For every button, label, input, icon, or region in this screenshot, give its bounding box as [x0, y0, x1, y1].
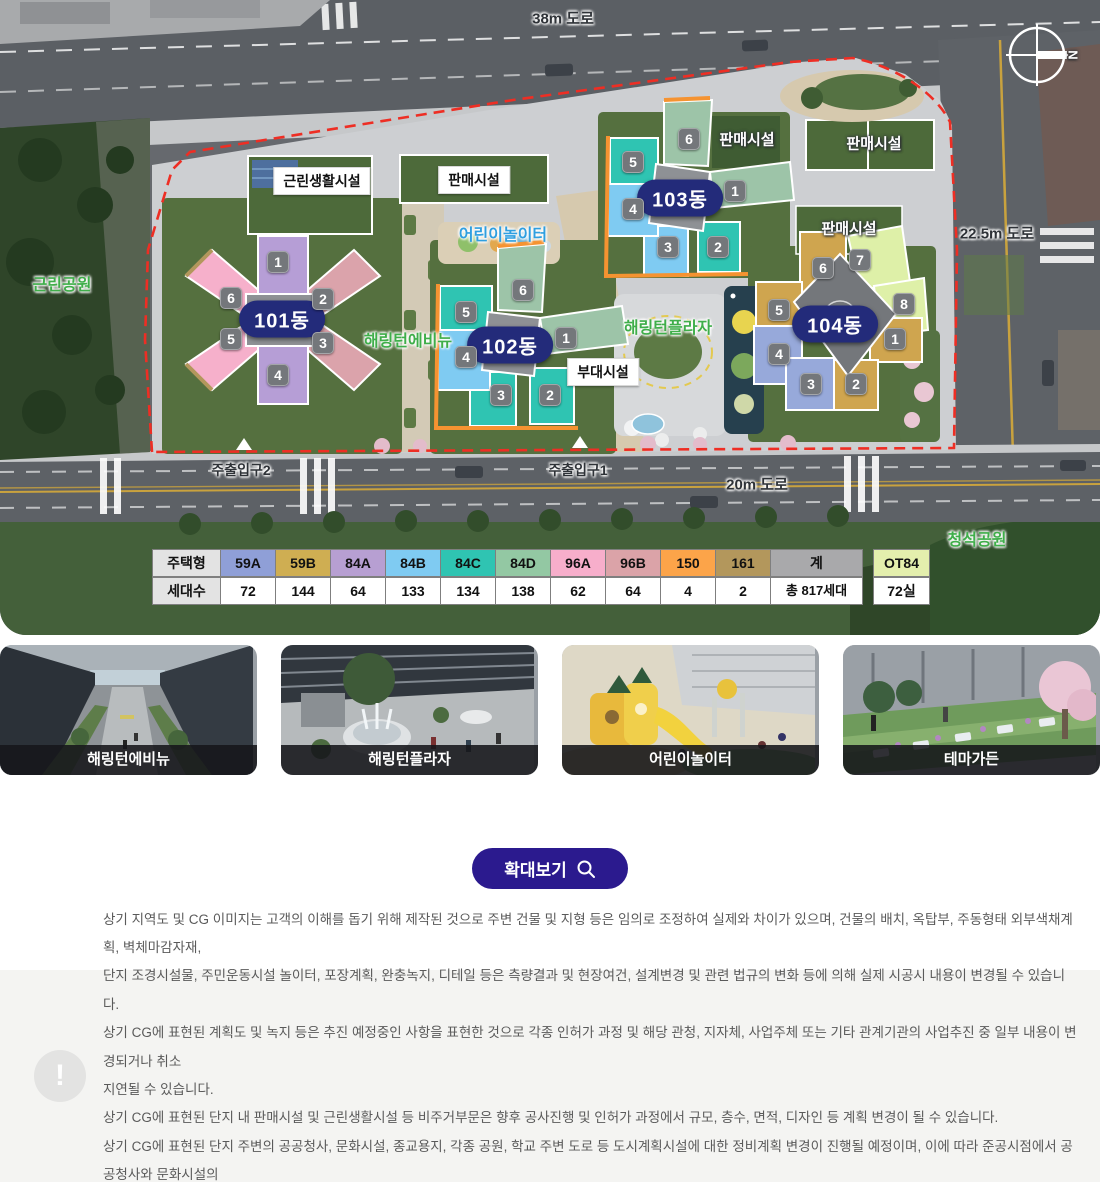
- row-header-count: 세대수: [152, 577, 221, 605]
- zoom-button-label: 확대보기: [504, 856, 567, 881]
- unit-badge: 6: [812, 257, 834, 279]
- unit-badge: 2: [539, 384, 561, 406]
- type-cell-84C: 84C: [440, 549, 496, 577]
- type-cell-96B: 96B: [605, 549, 661, 577]
- disclaimer-line: 상기 CG에 표현된 계획도 및 녹지 등은 추진 예정중인 사항을 표현한 것…: [103, 1019, 1080, 1076]
- disclaimer-line: 상기 CG에 표현된 단지 주변의 공공청사, 문화시설, 종교용지, 각종 공…: [103, 1133, 1080, 1182]
- unit-type-table: 주택형 세대수 59A72 59B144 84A64 84B133 84C134…: [153, 549, 930, 605]
- count-cell-OT84: 72실: [873, 577, 930, 605]
- facility-thumbnails: 해링턴에비뉴 해링턴플라자: [0, 635, 1100, 775]
- harrington-plaza-label: 해링턴플라자: [624, 314, 712, 338]
- type-cell-OT84: OT84: [873, 549, 930, 577]
- unit-badge: 4: [768, 343, 790, 365]
- count-cell-84A: 64: [330, 577, 386, 605]
- unit-badge: 3: [312, 332, 334, 354]
- sales-facility-rightmid-label: 판매시설: [821, 218, 876, 239]
- unit-badge: 1: [267, 251, 289, 273]
- exclamation-icon: !: [34, 1050, 86, 1102]
- type-cell-59B: 59B: [275, 549, 331, 577]
- type-cell-59A: 59A: [220, 549, 276, 577]
- thumbnail-harrington-avenue[interactable]: 해링턴에비뉴: [0, 645, 257, 775]
- unit-badge: 1: [724, 180, 746, 202]
- unit-badge: 5: [768, 299, 790, 321]
- unit-badge: 5: [220, 328, 242, 350]
- site-plan-map: 38m 도로 22.5m 도로 20m 도로 주출입구2 주출입구1 근린공원 …: [0, 0, 1100, 635]
- building-103-label: 103동: [637, 180, 723, 217]
- type-cell-total: 계: [770, 549, 863, 577]
- unit-badge: 2: [845, 373, 867, 395]
- zoom-button-row: 확대보기: [0, 848, 1100, 889]
- site-map-illustration: [0, 0, 1100, 635]
- unit-badge: 3: [657, 236, 679, 258]
- page: 38m 도로 22.5m 도로 20m 도로 주출입구2 주출입구1 근린공원 …: [0, 0, 1100, 1182]
- unit-badge: 8: [893, 293, 915, 315]
- type-cell-161: 161: [715, 549, 771, 577]
- count-cell-84D: 138: [495, 577, 551, 605]
- unit-badge: 5: [455, 301, 477, 323]
- road-20m-label: 20m 도로: [726, 474, 788, 495]
- building-102-label: 102동: [467, 327, 553, 364]
- thumbnail-caption: 해링턴에비뉴: [0, 745, 257, 775]
- road-22-5m-label: 22.5m 도로: [960, 223, 1034, 244]
- row-header-type: 주택형: [152, 549, 221, 577]
- count-cell-total: 총 817세대: [770, 577, 863, 605]
- disclaimer-line: 지연될 수 있습니다.: [103, 1076, 1080, 1104]
- unit-badge: 6: [512, 279, 534, 301]
- thumbnail-kids-playground[interactable]: 어린이놀이터: [562, 645, 819, 775]
- disclaimer-line: 상기 지역도 및 CG 이미지는 고객의 이해를 돕기 위해 제작된 것으로 주…: [103, 906, 1080, 963]
- unit-badge: 1: [555, 327, 577, 349]
- thumbnail-caption: 테마가든: [843, 745, 1100, 775]
- count-cell-59B: 144: [275, 577, 331, 605]
- unit-badge: 4: [455, 346, 477, 368]
- count-cell-96B: 64: [605, 577, 661, 605]
- unit-badge: 1: [884, 328, 906, 350]
- unit-badge: 5: [622, 151, 644, 173]
- annex-facility-label: 부대시설: [567, 358, 639, 386]
- type-cell-150: 150: [660, 549, 716, 577]
- sales-facility-topright-label: 판매시설: [846, 133, 901, 154]
- main-entrance-1-label: 주출입구1: [548, 460, 607, 480]
- count-cell-161: 2: [715, 577, 771, 605]
- road-38m-label: 38m 도로: [532, 8, 594, 29]
- unit-badge: 3: [490, 384, 512, 406]
- thumbnail-caption: 해링턴플라자: [281, 745, 538, 775]
- disclaimer-line: 상기 CG에 표현된 단지 내 판매시설 및 근린생활시설 등 비주거부문은 향…: [103, 1104, 1080, 1132]
- type-cell-84A: 84A: [330, 549, 386, 577]
- type-cell-84D: 84D: [495, 549, 551, 577]
- unit-badge: 2: [312, 288, 334, 310]
- neighborhood-park-label: 근린공원: [33, 271, 92, 295]
- harrington-avenue-label: 해링턴에비뉴: [364, 327, 452, 351]
- unit-badge: 4: [622, 198, 644, 220]
- neighborhood-living-facility-label: 근린생활시설: [273, 167, 370, 195]
- thumbnail-harrington-plaza[interactable]: 해링턴플라자: [281, 645, 538, 775]
- count-cell-150: 4: [660, 577, 716, 605]
- zoom-in-button[interactable]: 확대보기: [472, 848, 628, 889]
- disclaimer-section: ! 상기 지역도 및 CG 이미지는 고객의 이해를 돕기 위해 제작된 것으로…: [0, 970, 1100, 1182]
- main-entrance-2-label: 주출입구2: [211, 460, 270, 480]
- unit-badge: 6: [678, 128, 700, 150]
- count-cell-84B: 133: [385, 577, 441, 605]
- type-cell-96A: 96A: [550, 549, 606, 577]
- magnifier-icon: [576, 859, 596, 879]
- thumbnail-caption: 어린이놀이터: [562, 745, 819, 775]
- compass-n-label: N: [1066, 50, 1081, 59]
- count-cell-59A: 72: [220, 577, 276, 605]
- building-104-label: 104동: [792, 306, 878, 343]
- unit-badge: 2: [707, 236, 729, 258]
- cheongseok-park-label: 청석공원: [948, 526, 1007, 550]
- count-cell-96A: 62: [550, 577, 606, 605]
- unit-badge: 4: [267, 364, 289, 386]
- disclaimer-text: 상기 지역도 및 CG 이미지는 고객의 이해를 돕기 위해 제작된 것으로 주…: [103, 906, 1080, 1182]
- table-header-column: 주택형 세대수: [152, 549, 221, 605]
- count-cell-84C: 134: [440, 577, 496, 605]
- sales-facility-center-label: 판매시설: [438, 166, 510, 194]
- type-cell-84B: 84B: [385, 549, 441, 577]
- unit-badge: 6: [220, 287, 242, 309]
- thumbnail-theme-garden[interactable]: 테마가든: [843, 645, 1100, 775]
- unit-badge: 7: [849, 249, 871, 271]
- disclaimer-line: 단지 조경시설물, 주민운동시설 놀이터, 포장계획, 완충녹지, 디테일 등은…: [103, 962, 1080, 1019]
- kids-playground-label: 어린이놀이터: [459, 221, 547, 245]
- sales-facility-103-label: 판매시설: [719, 129, 774, 150]
- unit-badge: 3: [800, 373, 822, 395]
